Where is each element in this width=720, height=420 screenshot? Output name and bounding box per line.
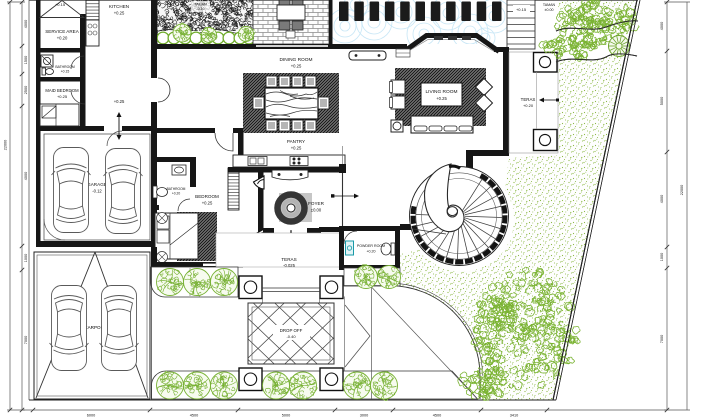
svg-text:+0.15: +0.15 (61, 70, 70, 74)
svg-text:+0.20: +0.20 (57, 36, 68, 41)
svg-text:22000: 22000 (4, 140, 8, 151)
svg-text:4000: 4000 (24, 20, 28, 28)
svg-text:MAID BEDROOM: MAID BEDROOM (45, 88, 79, 93)
svg-text:+0.20: +0.20 (172, 192, 181, 196)
svg-text:+0.15: +0.15 (55, 2, 66, 7)
svg-text:+0.25: +0.25 (202, 201, 213, 206)
svg-text:BATHROOM: BATHROOM (55, 65, 75, 69)
svg-text:4000: 4000 (24, 172, 28, 180)
svg-text:5000: 5000 (282, 414, 290, 418)
svg-text:±0.00: ±0.00 (311, 208, 322, 213)
svg-text:SERVICE AREA: SERVICE AREA (45, 29, 80, 34)
svg-text:6000: 6000 (87, 414, 95, 418)
svg-text:1000: 1000 (24, 254, 28, 262)
svg-text:-0.40: -0.40 (286, 334, 296, 339)
svg-text:5000: 5000 (660, 97, 664, 105)
svg-text:22000: 22000 (680, 185, 684, 196)
svg-text:+0.20: +0.20 (523, 103, 534, 108)
svg-text:DROP OFF: DROP OFF (280, 328, 303, 333)
svg-text:4000: 4000 (660, 195, 664, 203)
svg-text:TAMAN: TAMAN (543, 3, 556, 7)
svg-text:+0.25: +0.25 (291, 146, 302, 151)
svg-text:TAMAN: TAMAN (194, 3, 207, 7)
svg-text:+0.20: +0.20 (366, 250, 375, 254)
svg-text:KITCHEN: KITCHEN (109, 4, 129, 9)
svg-text:-0.025: -0.025 (283, 263, 296, 268)
svg-text:7000: 7000 (660, 335, 664, 343)
svg-text:-0.12: -0.12 (92, 189, 102, 194)
svg-text:+0.25: +0.25 (114, 11, 125, 16)
svg-text:±0.00: ±0.00 (545, 8, 554, 12)
svg-text:BATHROOM: BATHROOM (167, 187, 186, 191)
svg-text:BEDROOM: BEDROOM (195, 194, 219, 199)
svg-text:+0.25: +0.25 (57, 94, 68, 99)
svg-text:LIVING ROOM: LIVING ROOM (426, 89, 458, 95)
svg-text:1500: 1500 (24, 56, 28, 64)
svg-text:3000: 3000 (360, 414, 368, 418)
svg-text:GARAGE: GARAGE (87, 182, 107, 187)
svg-text:7000: 7000 (24, 336, 28, 344)
svg-text:+0.25: +0.25 (436, 96, 447, 101)
svg-text:+0.25: +0.25 (291, 64, 302, 69)
svg-text:-0.10: -0.10 (196, 7, 204, 11)
svg-text:2500: 2500 (24, 86, 28, 94)
svg-text:FOYER: FOYER (308, 201, 325, 206)
svg-text:PANTRY: PANTRY (287, 139, 305, 144)
svg-text:4500: 4500 (190, 414, 198, 418)
svg-text:+0.15: +0.15 (516, 7, 527, 12)
svg-text:POWDER ROOM: POWDER ROOM (357, 244, 385, 248)
svg-text:TERAS: TERAS (521, 97, 536, 102)
svg-text:3410: 3410 (510, 414, 518, 418)
svg-text:1000: 1000 (660, 253, 664, 261)
svg-text:4000: 4000 (660, 22, 664, 30)
svg-text:+0.25: +0.25 (114, 99, 125, 104)
svg-text:DINING ROOM: DINING ROOM (279, 57, 312, 63)
svg-text:4500: 4500 (433, 414, 441, 418)
svg-text:TERAS: TERAS (281, 257, 296, 262)
